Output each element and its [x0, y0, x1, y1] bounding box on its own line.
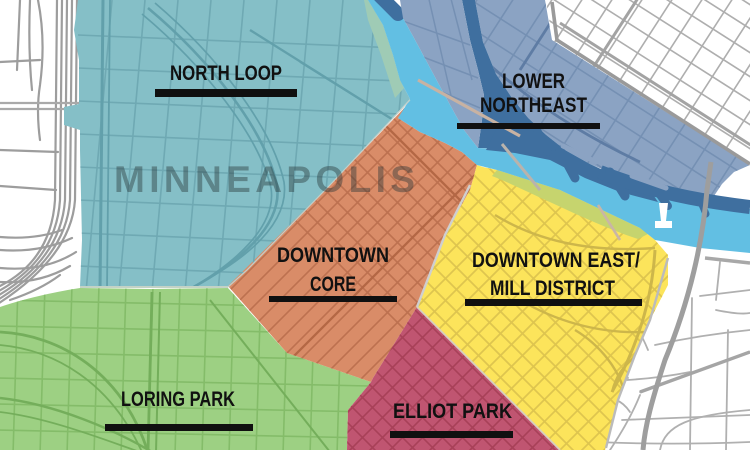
svg-text:ELLIOT PARK: ELLIOT PARK — [393, 400, 512, 423]
svg-text:DOWNTOWN EAST/: DOWNTOWN EAST/ — [472, 249, 640, 272]
svg-text:LORING PARK: LORING PARK — [121, 388, 235, 411]
svg-text:NORTHEAST: NORTHEAST — [480, 94, 587, 117]
svg-text:NORTH LOOP: NORTH LOOP — [170, 62, 282, 85]
svg-text:DOWNTOWN: DOWNTOWN — [277, 244, 389, 267]
svg-text:MILL DISTRICT: MILL DISTRICT — [490, 277, 615, 300]
svg-text:CORE: CORE — [310, 273, 356, 296]
svg-text:LOWER: LOWER — [502, 70, 565, 93]
svg-text:MINNEAPOLIS: MINNEAPOLIS — [114, 159, 419, 200]
